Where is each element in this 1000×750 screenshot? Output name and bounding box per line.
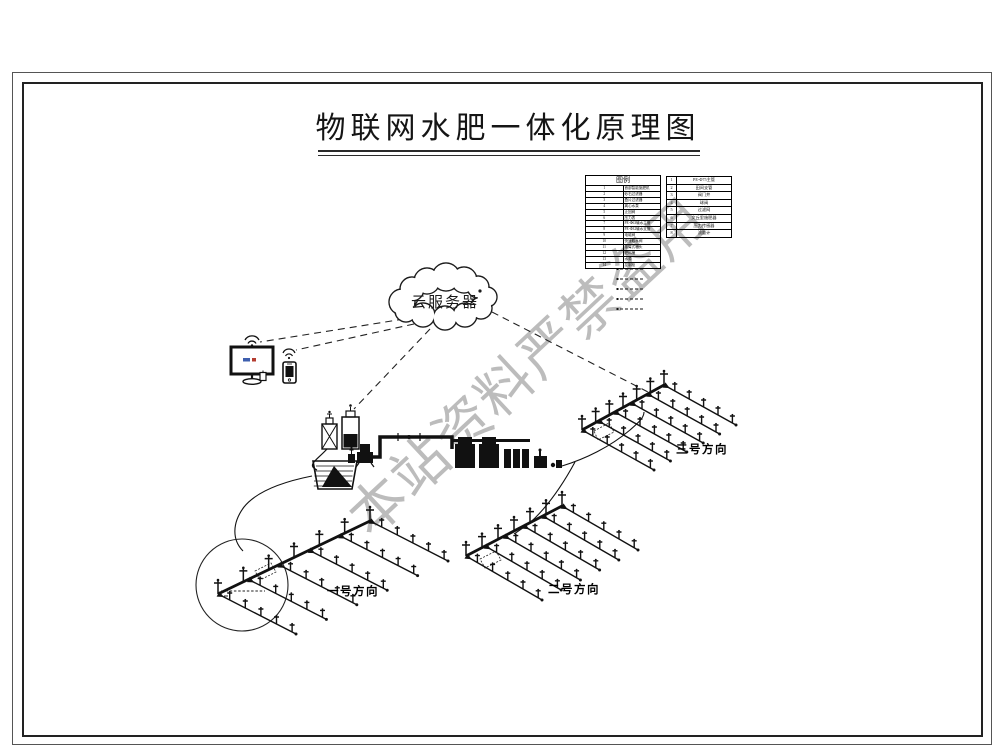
sprinkler-head [595, 559, 597, 561]
wifi-icon-phone [283, 349, 295, 359]
sprinkler-head [656, 408, 658, 410]
legend-table: 图例 1首部智能施肥机2砂石过滤器3叠片过滤器4离心水泵5止回阀6压力表7PE-… [585, 175, 661, 269]
sprinkler-head [321, 578, 323, 580]
sprinkler-head [686, 407, 688, 409]
sprinkler-head [573, 504, 575, 506]
sprinkler-head [653, 469, 656, 472]
sprinkler-head [614, 549, 616, 551]
sprinkler-head [513, 516, 516, 519]
sprinkler-head [290, 592, 292, 594]
sprinkler-head [526, 561, 528, 563]
sprinkler-head [688, 390, 690, 392]
sprinkler-head [320, 547, 322, 549]
sprinkler-head [666, 450, 668, 452]
sprinkler-head [496, 544, 498, 546]
field-3-label: 三号方向 [676, 441, 728, 457]
sprinkler-head [522, 580, 524, 582]
head-pipe [373, 437, 452, 457]
sprinkler-head [684, 424, 686, 426]
legend-row: 5过滤网 [667, 207, 732, 215]
sprinkler-head [534, 524, 536, 526]
sprinkler-head [530, 542, 532, 544]
sprinkler-head [507, 571, 509, 573]
sprinkler-head [511, 552, 513, 554]
sprinkler-head [635, 385, 638, 388]
sprinkler-head [625, 409, 627, 411]
sprinkler-head [396, 526, 398, 528]
sprinkler-head [492, 562, 494, 564]
sprinkler-head [703, 398, 705, 400]
sprinkler-head [545, 551, 547, 553]
sprinkler-head [608, 400, 611, 403]
sprinkler-head [594, 407, 597, 410]
sprinkler-head [672, 399, 674, 401]
sprinkler-head [293, 542, 296, 545]
sprinkler-head [443, 550, 445, 552]
sprinkler-head [529, 507, 532, 510]
sprinkler-head [650, 459, 652, 461]
link-cloud-station [354, 329, 430, 409]
sprinkler-head [217, 579, 220, 582]
sprinkler-head [581, 415, 584, 418]
sprinkler-head [603, 521, 605, 523]
sprinkler-head [259, 576, 261, 578]
sprinkler-head [397, 557, 399, 559]
sprinkler-head [617, 559, 620, 562]
legend-row: 4球阀 [667, 199, 732, 207]
legend-row: 8流量计 [667, 230, 732, 238]
sprinkler-head [654, 425, 656, 427]
sprinkler-head [386, 589, 389, 592]
sprinkler-head [322, 608, 324, 610]
field-1-label: 一号方向 [327, 583, 379, 599]
sprinkler-head [290, 562, 292, 564]
field-grid-1 [214, 506, 450, 636]
sprinkler-head [336, 555, 338, 557]
pump-icon [348, 444, 374, 467]
schematic-page: 本站资料严禁盗用 [0, 0, 1000, 750]
sprinkler-head [545, 499, 548, 502]
sprinkler-head [561, 491, 564, 494]
sprinkler-head [674, 382, 676, 384]
sprinkler-head [618, 530, 620, 532]
sprinkler-head [325, 618, 328, 621]
legend-row: 2田间支管 [667, 184, 732, 192]
sprinkler-risers [578, 372, 668, 430]
sprinkler-head [718, 433, 721, 436]
sprinkler-head [260, 607, 262, 609]
sprinkler-head [639, 417, 641, 419]
sprinkler-head [635, 451, 637, 453]
sprinkler-head [637, 434, 639, 436]
sprinkler-head [561, 560, 563, 562]
legend-row: 6文丘里施肥器 [667, 214, 732, 222]
sprinkler-head [622, 392, 625, 395]
sprinkler-head [275, 584, 277, 586]
sprinkler-head [416, 574, 419, 577]
sprinkler-head [549, 532, 551, 534]
sprinkler-head [242, 567, 245, 570]
sprinkler-head [229, 591, 231, 593]
sprinkler-risers [214, 508, 374, 594]
legend-row: 3阀门井 [667, 192, 732, 200]
sprinkler-head [606, 435, 608, 437]
diagram-canvas [0, 0, 1000, 750]
sprinkler-head [305, 570, 307, 572]
monitor-icon [231, 347, 273, 384]
sprinkler-head [355, 603, 358, 606]
water-basin-icon [313, 461, 357, 489]
sprinkler-head [244, 599, 246, 601]
sprinkler-head [465, 541, 468, 544]
sprinkler-head [267, 554, 270, 557]
sprinkler-head [382, 549, 384, 551]
sprinkler-head [382, 579, 384, 581]
sprinkler-head [658, 391, 660, 393]
sprinkler-head [351, 563, 353, 565]
sprinkler-head [623, 426, 625, 428]
sprinkler-head [477, 554, 479, 556]
sprinkler-head [735, 424, 738, 427]
filter-station-icon [452, 437, 562, 468]
sprinkler-head [541, 570, 543, 572]
sprinkler-head [633, 539, 635, 541]
sprinkler-head [649, 377, 652, 380]
sprinkler-head [668, 433, 670, 435]
sprinkler-head [641, 400, 643, 402]
sprinkler-head [367, 571, 369, 573]
sprinkler-head [515, 534, 517, 536]
cloud-label: 云服务器 [402, 291, 488, 312]
sprinkler-head [413, 565, 415, 567]
sprinkler-head [295, 633, 298, 636]
sprinkler-head [291, 623, 293, 625]
sprinkler-head [412, 534, 414, 536]
main-pipeline [235, 412, 644, 551]
field-2-label: 二号方向 [548, 581, 600, 597]
link-cloud-monitor [260, 319, 404, 342]
legend-line-samples [617, 268, 644, 310]
link-cloud-field3 [492, 312, 648, 392]
sprinkler-head [608, 418, 610, 420]
sprinkler-risers [462, 493, 566, 556]
sprinkler-head [497, 524, 500, 527]
sprinkler-head [732, 414, 734, 416]
sprinkler-head [553, 514, 555, 516]
field-marker-quads [255, 423, 614, 580]
lateral-lines [582, 384, 736, 470]
sprinkler-head [652, 442, 654, 444]
sprinkler-head [381, 518, 383, 520]
sprinkler-head [599, 540, 601, 542]
sprinkler-head [343, 518, 346, 521]
sprinkler-head [669, 460, 672, 463]
pipeline-to-field2 [514, 462, 575, 534]
sprinkler-head [428, 542, 430, 544]
sprinkler-head [369, 506, 372, 509]
sprinkler-head [701, 415, 703, 417]
sprinkler-head [306, 600, 308, 602]
legend-row: 1PE-Φ75主管 [667, 177, 732, 185]
sprinkler-head [588, 512, 590, 514]
sprinkler-head [537, 589, 539, 591]
legend-row: 7压力传感器 [667, 222, 732, 230]
fertilizer-tank-icon [322, 404, 359, 449]
sprinkler-head [592, 427, 594, 429]
sprinkler-head [318, 530, 321, 533]
legend-header: 图例 [586, 176, 661, 186]
sprinkler-head [350, 533, 352, 535]
legend-row: 14控制柜 [586, 262, 661, 268]
legend-table-secondary: 1PE-Φ75主管2田间支管3阀门井4球阀5过滤网6文丘里施肥器7压力传感器8流… [666, 176, 732, 238]
sprinkler-head [637, 549, 640, 552]
sprinkler-head [447, 560, 450, 563]
sprinkler-head [565, 541, 567, 543]
sprinkler-head [576, 569, 578, 571]
sprinkler-head [670, 416, 672, 418]
wifi-icon [245, 336, 259, 347]
sprinkler-head [569, 522, 571, 524]
sprinkler-head [481, 532, 484, 535]
sprinkler-head [715, 423, 717, 425]
sprinkler-head [699, 432, 701, 434]
sprinkler-head [717, 406, 719, 408]
sprinkler-head [366, 541, 368, 543]
sprinkler-head [663, 370, 666, 373]
smartphone-icon [283, 362, 296, 383]
sprinkler-head [580, 550, 582, 552]
sprinkler-head [598, 569, 601, 572]
link-cloud-phone [296, 324, 414, 350]
sprinkler-head [584, 531, 586, 533]
sprinkler-head [541, 599, 544, 602]
sprinkler-head [276, 615, 278, 617]
sprinkler-head [621, 443, 623, 445]
